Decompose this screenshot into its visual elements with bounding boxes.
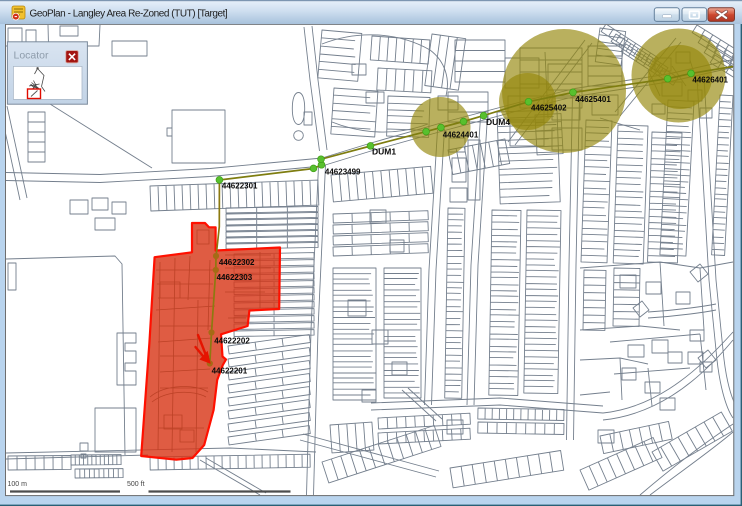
svg-text:44622202: 44622202 xyxy=(214,336,250,345)
svg-text:44625402: 44625402 xyxy=(531,104,567,113)
svg-text:44622201: 44622201 xyxy=(212,366,248,375)
svg-text:500 ft: 500 ft xyxy=(127,481,145,488)
svg-text:Locator: Locator xyxy=(14,50,50,62)
svg-text:44623499: 44623499 xyxy=(325,168,361,177)
svg-text:44625401: 44625401 xyxy=(575,95,611,104)
svg-text:44622302: 44622302 xyxy=(219,258,255,267)
svg-text:DUM1: DUM1 xyxy=(372,147,396,157)
svg-text:44622303: 44622303 xyxy=(217,273,253,282)
svg-text:GeoPlan - Langley Area Re-Zone: GeoPlan - Langley Area Re-Zoned (TUT) [T… xyxy=(30,8,228,19)
svg-text:44626401: 44626401 xyxy=(692,76,728,85)
svg-text:44624401: 44624401 xyxy=(443,130,479,139)
svg-text:100 m: 100 m xyxy=(8,481,28,488)
svg-text:44622301: 44622301 xyxy=(222,182,258,191)
svg-text:DUM4: DUM4 xyxy=(486,117,510,127)
